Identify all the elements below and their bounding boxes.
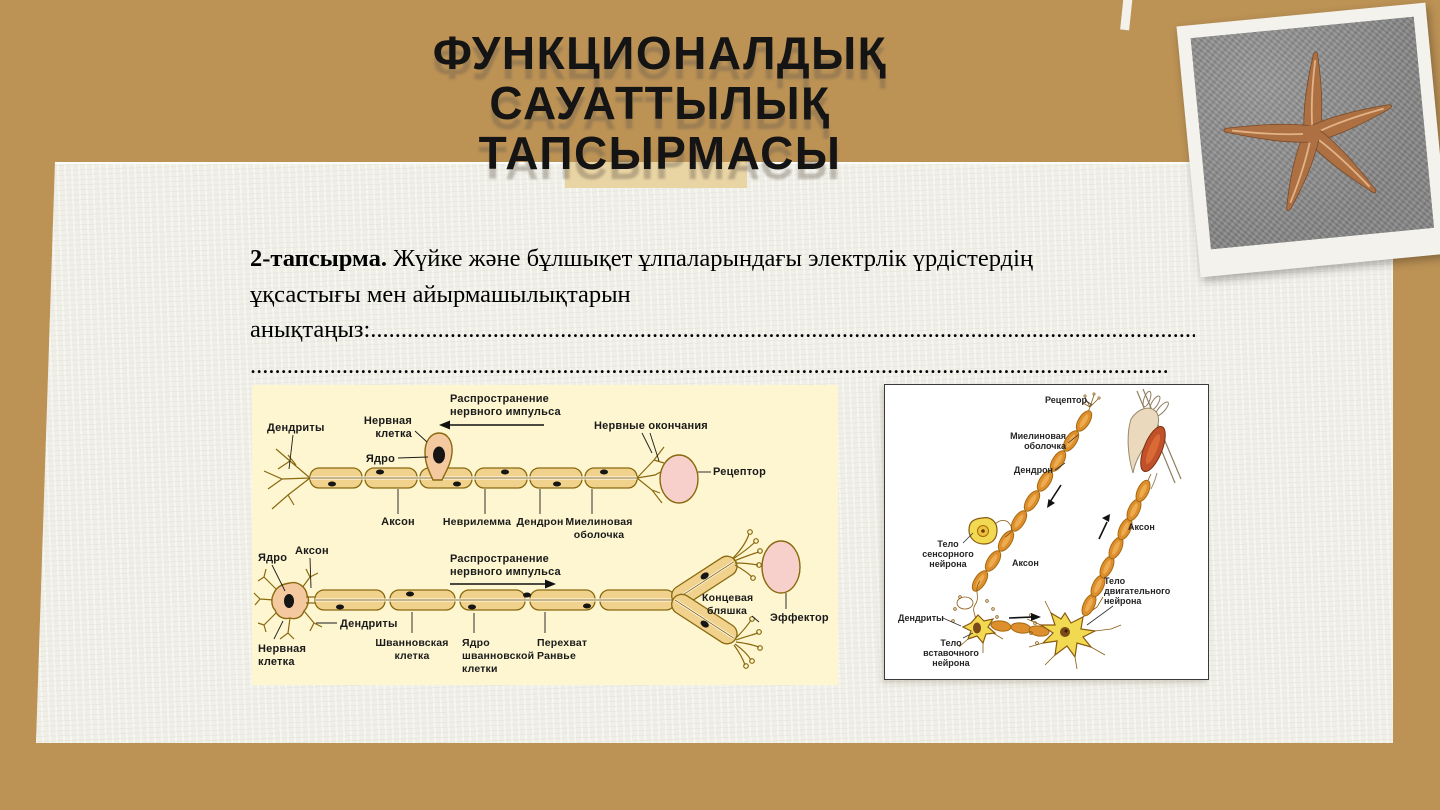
- task-line-3: анықтаңыз:..............................…: [250, 312, 1195, 348]
- label-ranvier-2: Ранвье: [537, 650, 576, 662]
- impulse-label-bottom-2: нервного импульса: [450, 566, 562, 578]
- task-line-1-rest: Жүйке және бұлшықет ұлпаларындағы электр…: [387, 245, 1033, 272]
- label-nerve-cell-top-2: клетка: [375, 428, 412, 440]
- label-interneuron-body-1: Тело: [940, 638, 962, 648]
- schwann-cell-chain: [315, 590, 675, 610]
- label-nerve-cell-bottom-1: Нервная: [258, 643, 306, 655]
- label-interneuron-body-3: нейрона: [932, 658, 970, 668]
- impulse-label-top-1: Распространение: [450, 393, 549, 405]
- label-axon-bottom: Аксон: [295, 545, 329, 557]
- label-effector: Эффектор: [770, 612, 829, 624]
- neuron-structure-diagram: Распространение нервного импульса Дендри…: [252, 385, 838, 685]
- task-dotted-line-1: ........................................…: [370, 316, 1195, 343]
- starfish-image: [1191, 17, 1434, 249]
- task-line-2: ұқсастығы мен айырмашылықтарын: [250, 277, 1195, 313]
- impulse-direction-top: Распространение нервного импульса: [439, 393, 562, 430]
- label-myelin-2: оболочка: [574, 529, 625, 541]
- label-dendrites-bottom: Дендриты: [340, 618, 398, 630]
- label-nerve-endings: Нервные окончания: [594, 420, 708, 432]
- dendrite-branches-left: [264, 449, 310, 509]
- label-motor-body-1: Тело: [1104, 576, 1126, 586]
- label-interneuron-body-2: вставочного: [923, 648, 979, 658]
- task-dotted-line-2: ........................................…: [250, 348, 1167, 384]
- reflex-arc-diagram: Рецептор Миелиновая оболочка Дендрон Тел…: [884, 384, 1209, 680]
- label-receptor: Рецептор: [713, 466, 766, 478]
- label-reflex-dendron: Дендрон: [1014, 465, 1053, 475]
- motor-neuron-figure: Распространение нервного импульса Ядро А…: [254, 530, 829, 675]
- label-motor-body-3: нейрона: [1104, 596, 1142, 606]
- page-title: ФУНКЦИОНАЛДЫҚ САУАТТЫЛЫҚ ТАПСЫРМАСЫ: [330, 28, 990, 178]
- task-line-3-prefix: анықтаңыз:: [250, 316, 370, 343]
- label-reflex-myelin-1: Миелиновая: [1010, 431, 1066, 441]
- title-line-1: ФУНКЦИОНАЛДЫҚ: [330, 28, 990, 78]
- label-reflex-axon-left: Аксон: [1012, 558, 1039, 568]
- impulse-direction-bottom: Распространение нервного импульса: [450, 553, 562, 589]
- label-end-plate-1: Концевая: [702, 592, 753, 604]
- label-dendrites-top: Дендриты: [267, 422, 325, 434]
- label-reflex-dendrites: Дендриты: [898, 613, 944, 623]
- task-text: 2-тапсырма. Жүйке және бұлшықет ұлпалары…: [250, 241, 1195, 383]
- effector-ellipse: [762, 541, 800, 593]
- interneuron-axon: [990, 620, 1050, 638]
- label-nerve-cell-bottom-2: клетка: [258, 656, 295, 668]
- label-nucleus-bottom: Ядро: [258, 552, 287, 564]
- title-line-3: ТАПСЫРМАСЫ: [330, 128, 990, 178]
- label-schwann-cell-2: клетка: [394, 650, 429, 662]
- arm-with-muscle: [1128, 389, 1181, 489]
- label-schwann-nucleus-1: Ядро: [462, 637, 490, 649]
- myelinated-axon-fiber: [310, 468, 637, 488]
- impulse-label-bottom-1: Распространение: [450, 553, 549, 565]
- label-myelin-1: Миелиновая: [565, 516, 632, 528]
- starfish-photo: [1176, 3, 1440, 278]
- label-reflex-myelin-2: оболочка: [1024, 441, 1067, 451]
- label-schwann-nucleus-2: шванновской: [462, 650, 534, 662]
- label-ranvier-1: Перехват: [537, 637, 587, 649]
- label-sensory-body-2: сенсорного: [922, 549, 974, 559]
- cell-body-multipolar: [272, 583, 309, 619]
- label-nerve-cell-top-1: Нервная: [364, 415, 412, 427]
- label-axon-top: Аксон: [381, 516, 415, 528]
- label-reflex-axon-right: Аксон: [1128, 522, 1155, 532]
- slide-background: ФУНКЦИОНАЛДЫҚ САУАТТЫЛЫҚ ТАПСЫРМАСЫ 2-та…: [0, 0, 1440, 810]
- sensory-neuron-figure: Распространение нервного импульса Дендри…: [264, 393, 766, 541]
- task-line-1: 2-тапсырма. Жүйке және бұлшықет ұлпалары…: [250, 241, 1195, 277]
- starfish-icon: [1208, 27, 1417, 236]
- label-sensory-body-3: нейрона: [929, 559, 967, 569]
- label-dendron: Дендрон: [516, 516, 563, 528]
- label-schwann-cell-1: Шванновская: [375, 637, 448, 649]
- task-number-label: 2-тапсырма.: [250, 245, 387, 272]
- label-neurilemma: Неврилемма: [443, 516, 511, 528]
- receptor-ellipse: [660, 455, 698, 503]
- label-reflex-receptor: Рецептор: [1045, 395, 1088, 405]
- label-end-plate-2: бляшка: [707, 605, 747, 617]
- label-nucleus-top: Ядро: [366, 453, 395, 465]
- label-motor-body-2: двигательного: [1104, 586, 1171, 596]
- label-sensory-body-1: Тело: [937, 539, 959, 549]
- label-schwann-nucleus-3: клетки: [462, 663, 498, 675]
- impulse-label-top-2: нервного импульса: [450, 406, 562, 418]
- title-line-2: САУАТТЫЛЫҚ: [330, 78, 990, 128]
- photo-stack-edge: [1120, 0, 1133, 30]
